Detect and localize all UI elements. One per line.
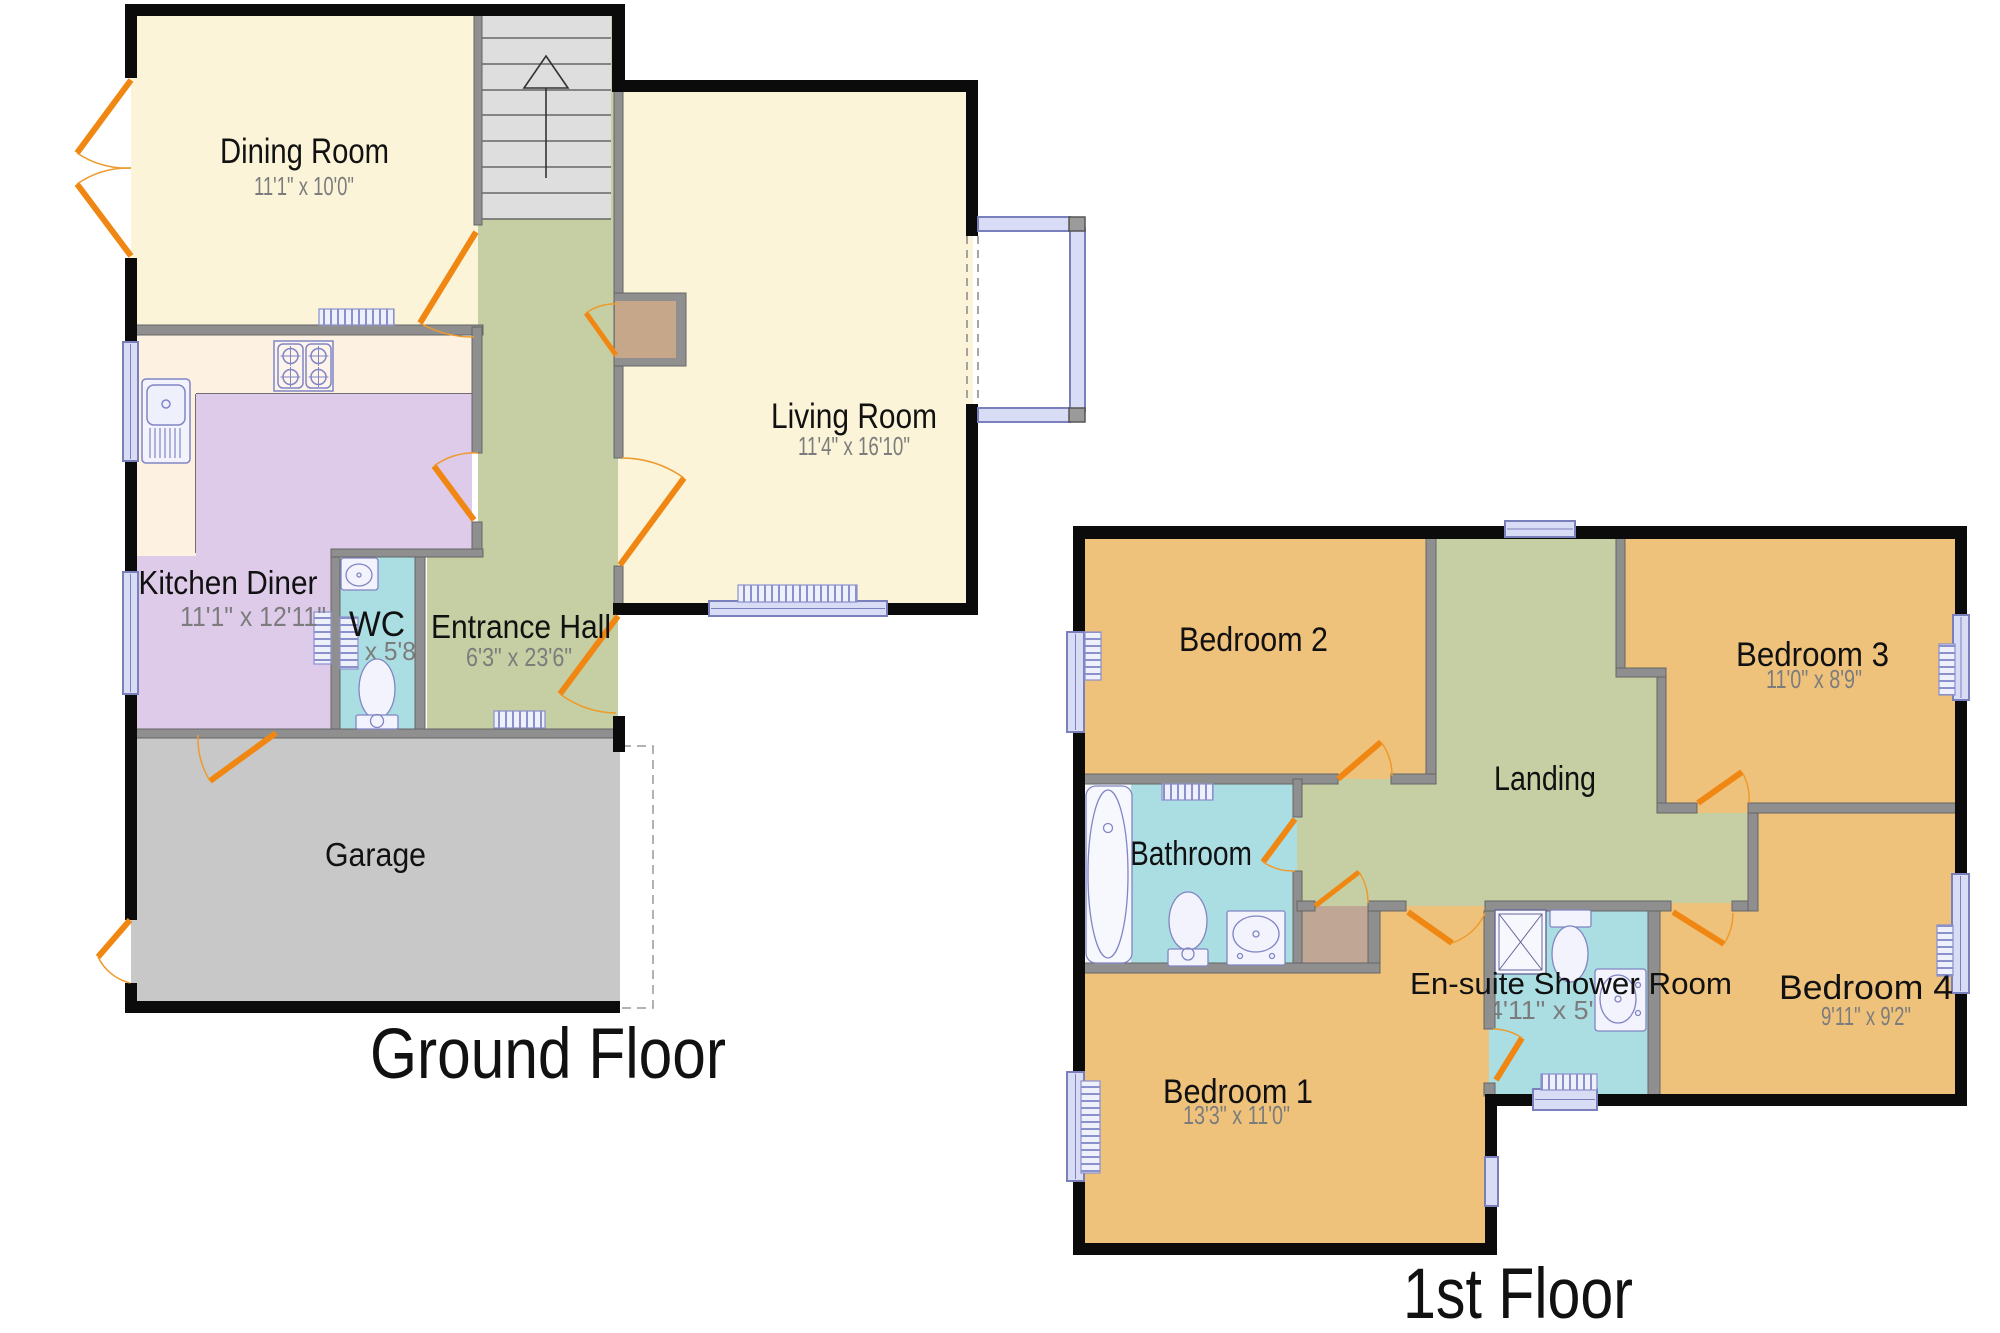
svg-text:13'3" x 11'0": 13'3" x 11'0" [1183, 1100, 1290, 1130]
svg-text:Kitchen Diner: Kitchen Diner [139, 564, 318, 601]
svg-text:En-suite Shower Room: En-suite Shower Room [1410, 966, 1732, 1001]
svg-text:Entrance Hall: Entrance Hall [431, 608, 611, 645]
svg-text:Ground Floor: Ground Floor [370, 1015, 726, 1094]
svg-text:Bedroom 2: Bedroom 2 [1179, 621, 1328, 659]
svg-text:Dining Room: Dining Room [220, 132, 389, 171]
svg-text:11'1" x 10'0": 11'1" x 10'0" [254, 171, 354, 201]
svg-text:Landing: Landing [1494, 760, 1596, 798]
svg-text:9'11" x 9'2": 9'11" x 9'2" [1821, 1001, 1911, 1031]
svg-text:11'4" x 16'10": 11'4" x 16'10" [798, 431, 910, 461]
svg-text:11'0" x 8'9": 11'0" x 8'9" [1766, 664, 1862, 694]
svg-text:Bathroom: Bathroom [1130, 835, 1252, 873]
svg-text:6'3" x 23'6": 6'3" x 23'6" [466, 642, 572, 672]
svg-text:Garage: Garage [325, 836, 426, 873]
svg-text:1st Floor: 1st Floor [1403, 1255, 1633, 1333]
svg-text:WC: WC [349, 605, 405, 644]
svg-text:11'1" x 12'11": 11'1" x 12'11" [180, 601, 326, 632]
